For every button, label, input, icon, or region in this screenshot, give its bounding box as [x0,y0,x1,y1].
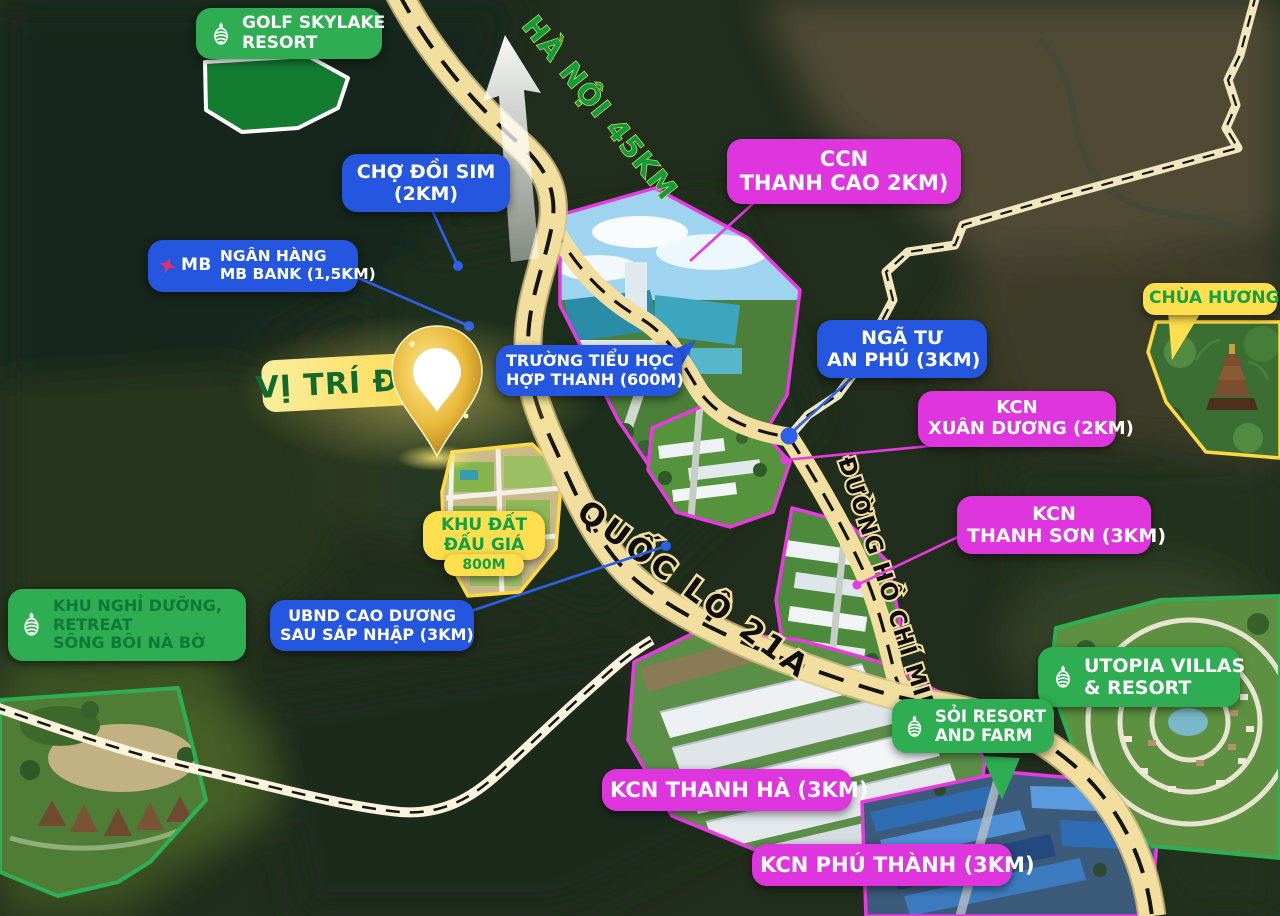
badge-ccn-thanh-cao: CCN THANH CAO 2KM) [727,139,961,204]
badge-kcn-phu-thanh: KCN PHÚ THÀNH (3KM) [752,844,1012,886]
mb-logo-icon [158,256,177,275]
badge-ubnd-cao-duong: UBND CAO DƯƠNG SAU SÁP NHẬP (3KM) [270,600,474,651]
badge-khu-nghi-duong: KHU NGHỈ DƯỠNG, RETREAT SÔNG BÔI NÀ BỜ [8,589,246,661]
mb-logo-text: MB [181,256,212,276]
badge-text: UTOPIA VILLAS & RESORT [1084,655,1245,699]
badge-nga-tu-an-phu: NGÃ TƯ AN PHÚ (3KM) [817,320,987,378]
badge-text: KHU NGHỈ DƯỠNG, RETREAT SÔNG BÔI NÀ BỜ [53,597,222,653]
pinecone-icon [208,21,234,47]
mb-logo: MB [158,256,212,276]
junction-dot [781,428,798,445]
badge-cho-doi-sim: CHỢ ĐỒI SIM (2KM) [342,154,510,212]
badge-mb-bank: MB NGÂN HÀNG MB BANK (1,5KM) [148,240,358,292]
badge-text: GOLF SKYLAKE RESORT [242,14,385,53]
real-estate-location-map: QUỐC LỘ 21A ĐƯỜNG HỒ CHÍ MINH HÀ NỘI 45K… [0,0,1280,916]
badge-soi-resort: SỎI RESORT AND FARM [892,699,1054,753]
badge-kcn-thanh-ha: KCN THANH HÀ (3KM) [602,769,852,811]
badge-golf-skylake-resort: GOLF SKYLAKE RESORT [196,8,382,59]
badge-utopia-villas: UTOPIA VILLAS & RESORT [1038,647,1240,707]
badge-chua-huong: CHÙA HƯƠNG [1143,283,1277,315]
badge-truong-tieu-hoc: TRƯỜNG TIỂU HỌC HỢP THANH (600M) [496,345,682,396]
pinecone-icon [902,714,927,739]
badge-dau-gia-distance: 800M [444,554,524,576]
badge-kcn-xuan-duong: KCN XUÂN DƯƠNG (2KM) [918,391,1116,447]
badge-text: SỎI RESORT AND FARM [935,707,1046,745]
badge-kcn-thanh-son: KCN THANH SƠN (3KM) [957,496,1151,554]
badge-text: NGÂN HÀNG MB BANK (1,5KM) [220,248,376,284]
pinecone-icon [18,611,45,638]
pinecone-icon [1050,664,1076,690]
